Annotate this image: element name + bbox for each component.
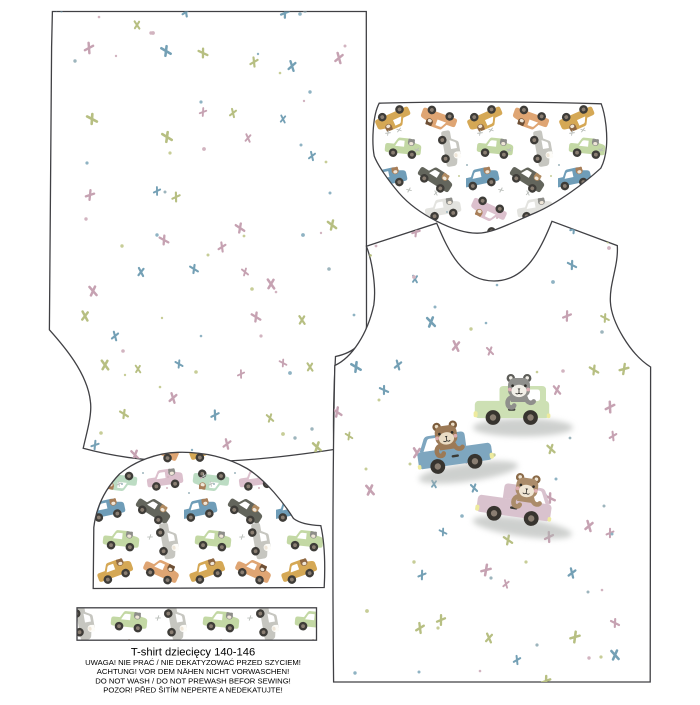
svg-text:T-shirt dziecięcy 140-146: T-shirt dziecięcy 140-146 xyxy=(131,647,255,659)
svg-text:POZOR! PŘED ŠITÍM NEPERTE A NE: POZOR! PŘED ŠITÍM NEPERTE A NEDEKATUJTE! xyxy=(103,686,283,695)
svg-text:UWAGA! NIE PRAĆ / NIE DEKATYZO: UWAGA! NIE PRAĆ / NIE DEKATYZOWAĆ PRZED … xyxy=(85,658,301,667)
svg-text:ACHTUNG! VOR DEM NÄHEN NICHT V: ACHTUNG! VOR DEM NÄHEN NICHT VORWASCHEN! xyxy=(97,667,290,676)
svg-text:DO NOT WASH / DO NOT PREWASH B: DO NOT WASH / DO NOT PREWASH BEFOR SEWIN… xyxy=(95,676,291,685)
